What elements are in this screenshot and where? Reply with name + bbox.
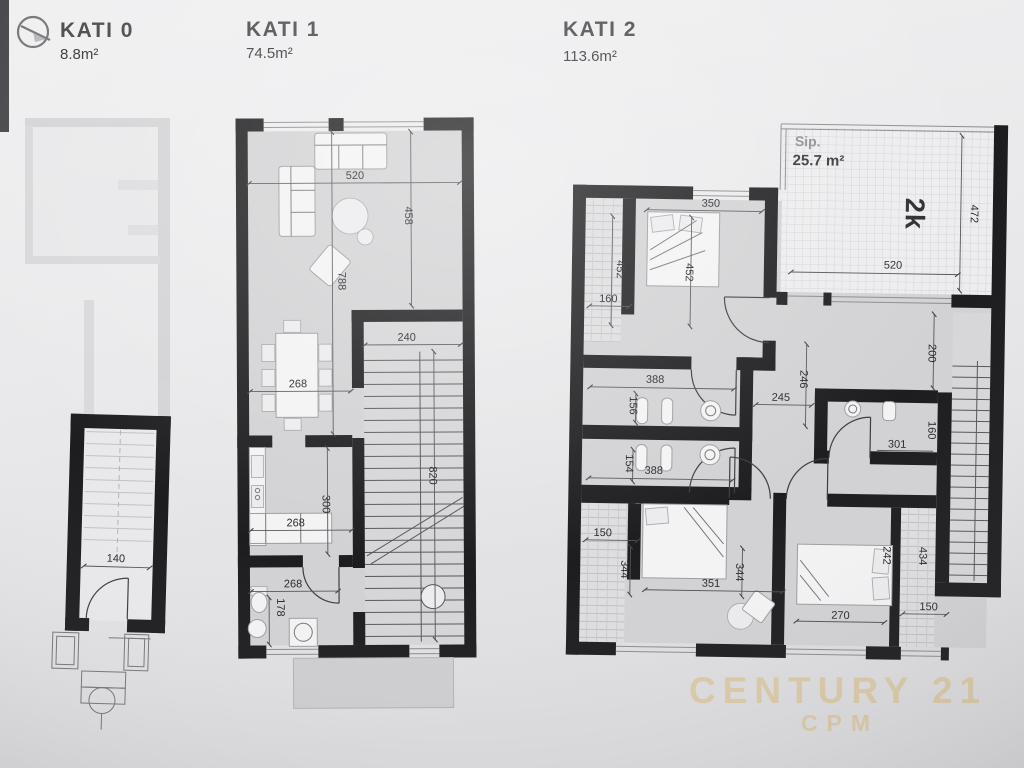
dim-788: 788 bbox=[335, 272, 347, 290]
floor-plan-drawing: 140 bbox=[0, 0, 1024, 768]
sink bbox=[248, 619, 266, 637]
floor-title-kati2: KATI 2 bbox=[563, 18, 637, 41]
sofa-2 bbox=[279, 166, 315, 236]
floor-area-kati0: 8.8m² bbox=[60, 46, 98, 63]
dim-245: 245 bbox=[772, 392, 791, 404]
stairs-kati2 bbox=[949, 313, 991, 597]
dim-344-r: 344 bbox=[733, 563, 745, 582]
floor-title-kati1: KATI 1 bbox=[246, 18, 320, 41]
dim-268-kitchen: 268 bbox=[286, 517, 304, 529]
dim-434: 434 bbox=[916, 547, 928, 566]
floor-title-kati0: KATI 0 bbox=[60, 19, 134, 42]
side-table bbox=[357, 229, 373, 245]
dim-452-r: 452 bbox=[683, 263, 695, 282]
watermark-office: CPM bbox=[801, 710, 879, 736]
dim-388-b2: 388 bbox=[644, 465, 663, 477]
dim-242: 242 bbox=[880, 546, 892, 565]
dim-200: 200 bbox=[925, 344, 937, 363]
dim-154: 154 bbox=[623, 454, 635, 473]
toilet bbox=[251, 592, 267, 612]
rug bbox=[332, 198, 368, 234]
toilet bbox=[883, 401, 896, 420]
dim-351: 351 bbox=[702, 578, 721, 590]
dim-458: 458 bbox=[402, 207, 414, 225]
terrace-label: Sip. bbox=[795, 133, 821, 149]
terrace-room-code: 2k bbox=[900, 198, 930, 231]
dim-150-br: 150 bbox=[919, 601, 938, 613]
dim-268-dining: 268 bbox=[289, 378, 307, 390]
watermark-brand: CENTURY 21 bbox=[689, 670, 987, 711]
dim-246: 246 bbox=[797, 370, 809, 389]
dim-240: 240 bbox=[398, 332, 416, 344]
dim-472: 472 bbox=[968, 205, 980, 224]
floor-area-kati1: 74.5m² bbox=[246, 45, 293, 62]
floor-plan-kati1: 520 458 788 240 268 820 300 268 268 178 bbox=[236, 117, 477, 708]
dim-301: 301 bbox=[888, 439, 907, 451]
photo-edge-artifact bbox=[0, 0, 9, 132]
dim-268-bath: 268 bbox=[284, 578, 302, 590]
dim-452-l: 452 bbox=[614, 260, 626, 279]
stair-column bbox=[421, 585, 445, 609]
bed-single bbox=[642, 504, 727, 579]
dim-350: 350 bbox=[702, 198, 721, 210]
sofa bbox=[315, 133, 387, 169]
terrace-kati1 bbox=[293, 657, 453, 708]
dim-270: 270 bbox=[831, 610, 850, 622]
roof-terrace-2k: Sip. 25.7 m² 2k 472 520 bbox=[779, 124, 995, 295]
dim-344-l: 344 bbox=[618, 560, 630, 579]
dim-520-terrace: 520 bbox=[884, 259, 903, 271]
floor-plan-sheet: 140 bbox=[0, 0, 1024, 768]
floor-area-kati2: 113.6m² bbox=[563, 48, 617, 65]
floor-plan-kati2: Sip. 25.7 m² 2k 472 520 bbox=[566, 119, 1008, 662]
dim-300: 300 bbox=[320, 495, 332, 513]
dim-820: 820 bbox=[426, 466, 438, 484]
terrace-area: 25.7 m² bbox=[792, 152, 844, 170]
dim-150-bl: 150 bbox=[593, 527, 612, 539]
dim-520: 520 bbox=[346, 170, 364, 182]
dim-140: 140 bbox=[107, 553, 126, 566]
dim-178: 178 bbox=[274, 598, 286, 616]
washing-machine bbox=[289, 618, 317, 646]
bed-double-2 bbox=[797, 544, 893, 605]
dim-160-bath: 160 bbox=[925, 421, 937, 440]
dim-388-b1: 388 bbox=[646, 374, 665, 386]
dim-160-tl: 160 bbox=[599, 293, 618, 305]
stairs-kati1 bbox=[364, 321, 465, 645]
dim-156: 156 bbox=[627, 396, 639, 415]
